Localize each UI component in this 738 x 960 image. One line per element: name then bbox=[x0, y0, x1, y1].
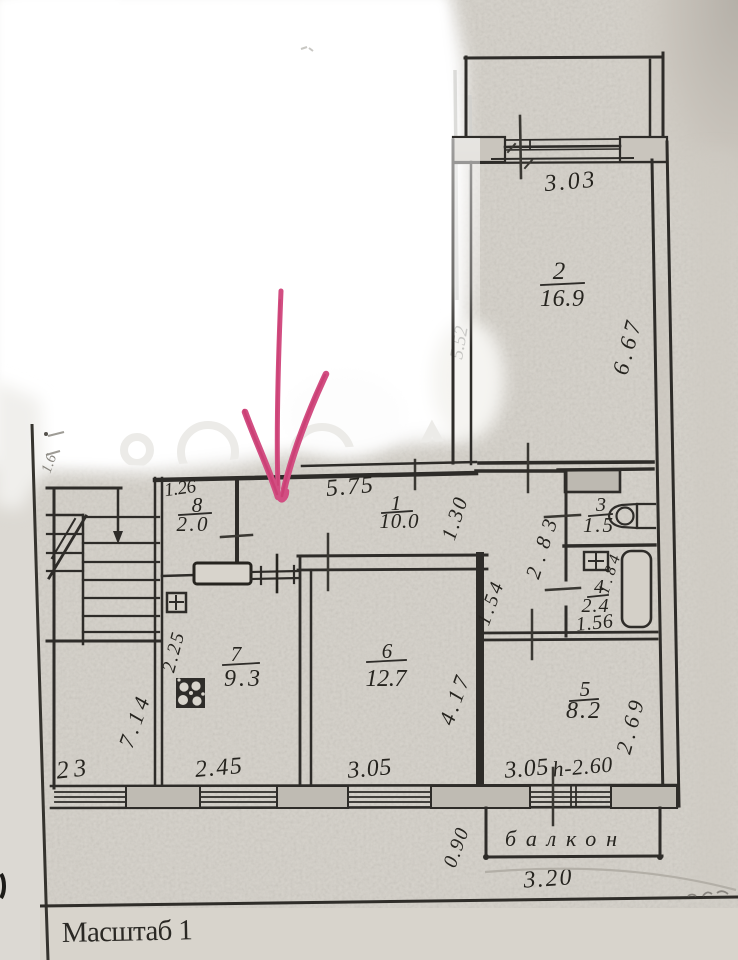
svg-text:3.05: 3.05 bbox=[345, 754, 392, 784]
svg-text:8.2: 8.2 bbox=[566, 698, 600, 724]
svg-text:16.9: 16.9 bbox=[540, 286, 584, 312]
svg-text:6: 6 bbox=[382, 639, 393, 663]
svg-text:3.03: 3.03 bbox=[542, 167, 595, 197]
svg-text:h-2.60: h-2.60 bbox=[551, 751, 613, 781]
svg-text:5.75: 5.75 bbox=[325, 472, 374, 502]
svg-text:2: 2 bbox=[553, 258, 566, 285]
svg-text:2.45: 2.45 bbox=[194, 753, 243, 783]
svg-text:9.3: 9.3 bbox=[224, 666, 260, 692]
svg-text:Масштаб 1: Масштаб 1 bbox=[61, 914, 193, 949]
svg-text:1.5: 1.5 bbox=[583, 513, 613, 537]
svg-text:12.7: 12.7 bbox=[366, 666, 408, 692]
svg-text:7: 7 bbox=[231, 642, 243, 666]
svg-text:3.05: 3.05 bbox=[502, 754, 549, 784]
